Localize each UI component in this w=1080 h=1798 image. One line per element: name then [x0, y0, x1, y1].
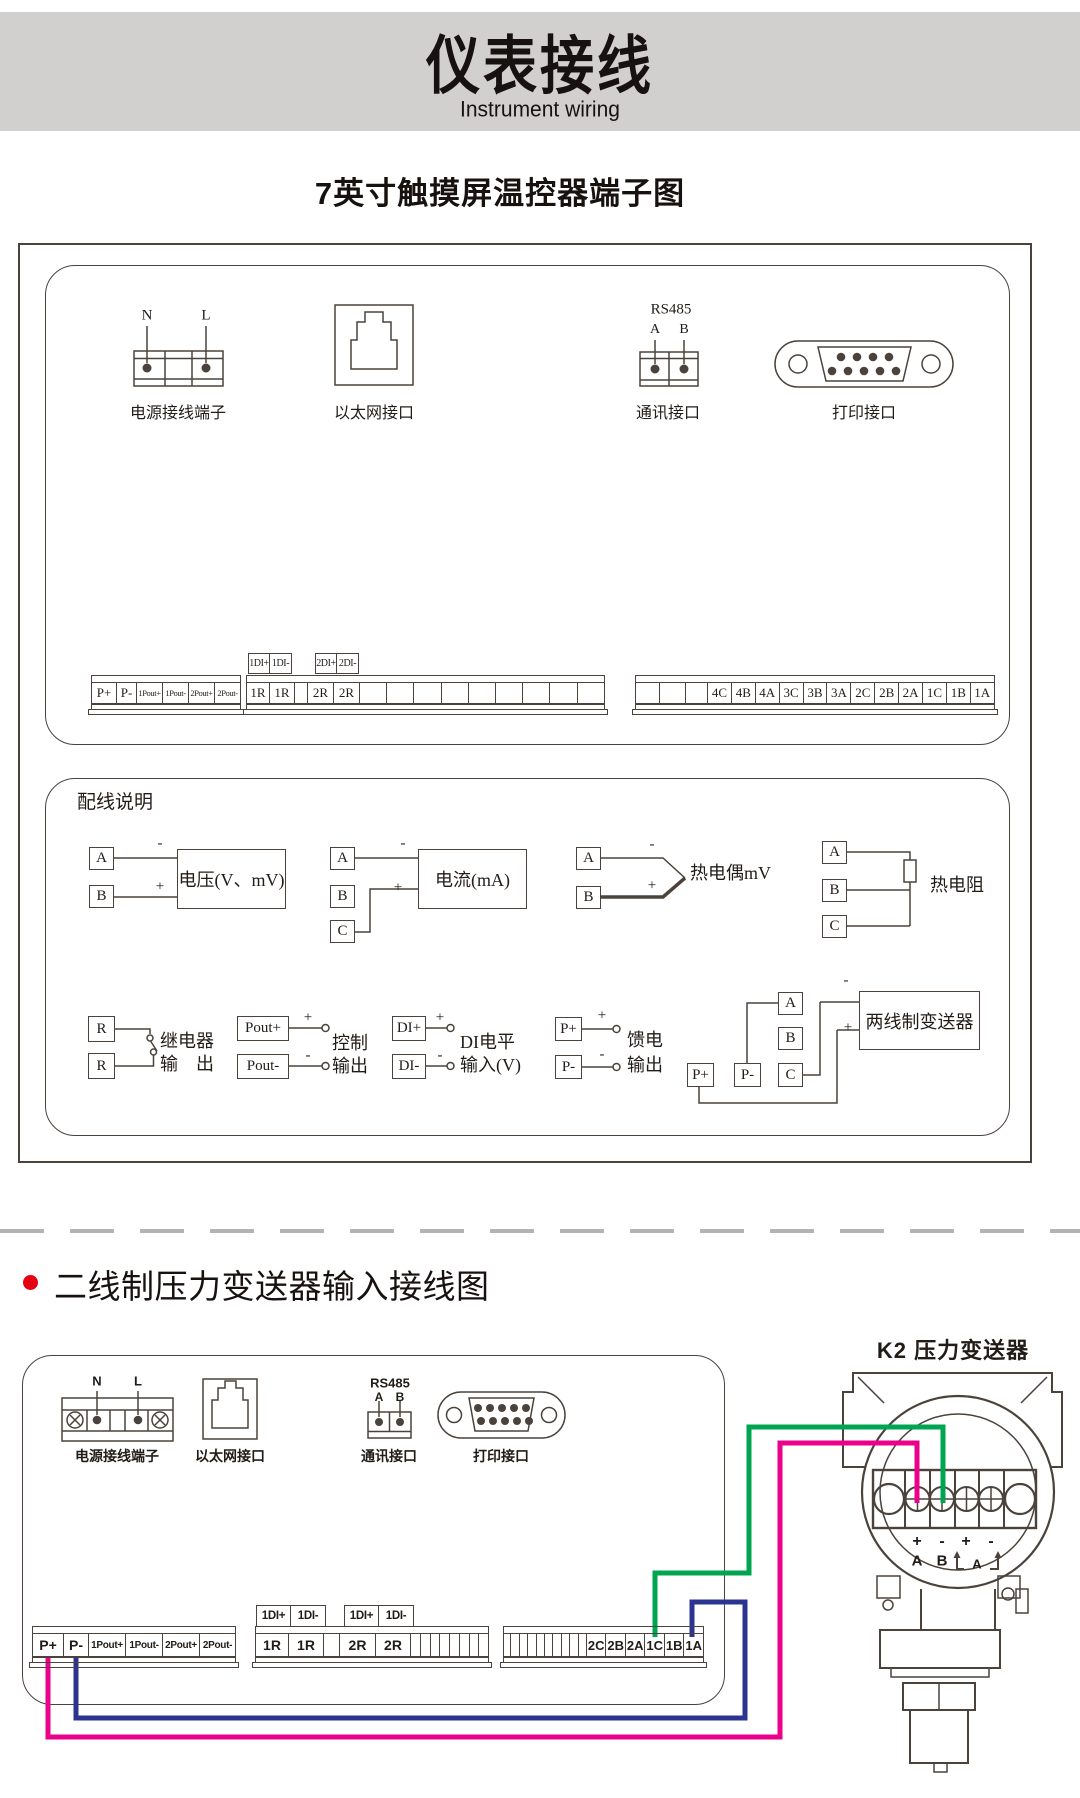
terminal-cell [578, 682, 605, 705]
terminal-a: A [778, 992, 803, 1015]
thermocouple-label: 热电偶mV [690, 859, 771, 885]
minus-sign: - [650, 837, 655, 854]
terminal-a: A [89, 847, 114, 870]
terminal-b: B [576, 886, 601, 909]
terminal-cell: 1DI+ [248, 653, 270, 674]
terminal-cell: 1C [645, 1633, 665, 1658]
minus-sign: - [306, 1048, 311, 1065]
terminal-p-minus: P- [555, 1055, 582, 1079]
terminal-cell [635, 682, 660, 705]
terminal-cell: 3A [827, 682, 851, 705]
terminal-cell [579, 1633, 587, 1658]
plus-sign: + [304, 1010, 312, 1027]
terminal-cell: 1Pout- [163, 682, 189, 705]
power-caption: 电源接线端子 [75, 1446, 159, 1466]
relay-label-2: 输 出 [160, 1050, 214, 1076]
terminal-cell: 2C [851, 682, 875, 705]
transmitter-sign: + [912, 1533, 921, 1551]
printer-port-icon-2 [438, 1392, 565, 1438]
terminal-cell: 2C [587, 1633, 607, 1658]
printer-caption: 打印接口 [832, 399, 896, 423]
terminal-cell: 1C [923, 682, 947, 705]
plus-sign: + [844, 1020, 852, 1037]
terminal-p-plus: P+ [555, 1017, 582, 1041]
section3-title: 二线制压力变送器输入接线图 [54, 1260, 490, 1308]
wire-pink-pplus-to-a [48, 1443, 917, 1737]
feed-label-2: 输出 [627, 1051, 663, 1077]
terminal-cell [440, 1633, 450, 1658]
terminal-c: C [330, 920, 355, 943]
strip-relay: 1R1R2R2R [246, 675, 605, 715]
terminal-cell [360, 682, 387, 705]
terminal-cell: 2A [899, 682, 923, 705]
terminal-cell [469, 682, 496, 705]
terminal-cell: 2B [606, 1633, 626, 1658]
terminal-cell: 2B [875, 682, 899, 705]
di-block-2: 1DI+1DI- [344, 1605, 414, 1627]
power-caption: 电源接线端子 [130, 399, 226, 423]
terminal-cell: 1R [246, 682, 270, 705]
printer-caption: 打印接口 [473, 1446, 529, 1466]
terminal-cell [496, 682, 523, 705]
terminal-c: C [822, 915, 847, 938]
terminal-cell [460, 1633, 470, 1658]
plus-sign: + [394, 880, 402, 897]
terminal-cell: 2Pout- [215, 682, 241, 705]
terminal-cell: 2A [626, 1633, 646, 1658]
terminal-di-minus: DI- [392, 1054, 426, 1079]
terminal-cell: 2DI- [337, 653, 359, 674]
terminal-a: A [822, 841, 847, 864]
transmitter-sign: - [939, 1533, 944, 1551]
terminal-cell [442, 682, 469, 705]
rs485-title: RS485 [651, 302, 692, 319]
terminal-cell: 1B [947, 682, 971, 705]
terminal-cell: 2Pout+ [189, 682, 215, 705]
ethernet-caption: 以太网接口 [334, 399, 414, 423]
rs485-caption: 通讯接口 [361, 1446, 417, 1466]
terminal-r: R [88, 1053, 115, 1079]
transmitter-pin-a2: A [972, 1557, 981, 1572]
terminal-cell [470, 1633, 480, 1658]
terminal-cell: 2R [334, 682, 360, 705]
di-block-1: 1DI+1DI- [256, 1605, 326, 1627]
feed-label-1: 馈电 [627, 1026, 663, 1052]
terminal-cell: 2DI+ [315, 653, 337, 674]
ethernet-caption: 以太网接口 [195, 1446, 265, 1466]
terminal-a: A [330, 847, 355, 870]
rs485-port-icon [640, 340, 698, 386]
terminal-cell [387, 682, 414, 705]
control-label-2: 输出 [332, 1052, 368, 1078]
terminal-p-plus: P+ [687, 1063, 714, 1087]
rs485-title: RS485 [370, 1376, 410, 1391]
strip-power-io: P+P-1Pout+1Pout-2Pout+2Pout- [32, 1626, 236, 1668]
power-n-label: N [142, 308, 153, 325]
minus-sign: - [401, 836, 406, 853]
transmitter-sign: - [988, 1533, 993, 1551]
terminal-cell: 2R [308, 682, 334, 705]
terminal-b: B [89, 885, 114, 908]
terminal-cell: 3C [780, 682, 804, 705]
ethernet-port-icon [335, 305, 413, 385]
terminal-pout-minus: Pout- [237, 1054, 289, 1079]
transmitter-pin-a: A [912, 1553, 923, 1570]
strip-inputs: 4C4B4A3C3B3A2C2B2A1C1B1A [635, 675, 995, 715]
power-l-label: L [201, 308, 210, 325]
terminal-cell: P- [117, 682, 137, 705]
di-label-2: 输入(V) [460, 1051, 521, 1077]
terminal-cell [295, 682, 308, 705]
rs485-b-label: B [679, 322, 688, 338]
terminal-cell: 2R [340, 1633, 376, 1658]
terminal-pout-plus: Pout+ [237, 1016, 289, 1041]
terminal-cell: 1DI+ [344, 1605, 379, 1627]
di-block-1: 1DI+1DI- [248, 653, 292, 674]
current-box: 电流(mA) [418, 849, 527, 909]
strip-power-io: P+P-1Pout+1Pout-2Pout+2Pout- [91, 675, 241, 715]
rs485-a-label: A [375, 1390, 384, 1404]
terminal-cell [660, 682, 686, 705]
strip-inputs: 2C2B2A1C1B1A [503, 1626, 704, 1668]
linework-layer [0, 0, 1080, 1798]
power-terminal-icon [134, 326, 223, 386]
terminal-cell [503, 1633, 511, 1658]
terminal-cell [570, 1633, 578, 1658]
terminal-cell: 1DI- [291, 1605, 326, 1627]
rs485-caption: 通讯接口 [636, 399, 700, 423]
signal-wires [48, 1427, 943, 1737]
k2-transmitter-label: K2 压力变送器 [877, 1333, 1029, 1365]
terminal-cell [411, 1633, 421, 1658]
minus-sign: - [600, 1047, 605, 1064]
minus-sign: - [158, 836, 163, 853]
instrument-wiring-page: 仪表接线 Instrument wiring 7英寸触摸屏温控器端子图 [0, 0, 1080, 1798]
terminal-p-minus: P- [734, 1063, 761, 1087]
terminal-cell [537, 1633, 545, 1658]
power-terminal-icon-2 [62, 1391, 173, 1441]
two-wire-transmitter-box: 两线制变送器 [859, 991, 980, 1050]
terminal-cell [511, 1633, 519, 1658]
rs485-a-label: A [650, 322, 660, 338]
power-l-label: L [134, 1374, 142, 1389]
plus-sign: + [648, 878, 656, 895]
terminal-cell: 1B [665, 1633, 685, 1658]
terminal-cell: 4B [732, 682, 756, 705]
terminal-cell [431, 1633, 441, 1658]
terminal-cell [553, 1633, 561, 1658]
plus-sign: + [598, 1008, 606, 1025]
minus-sign: - [844, 973, 849, 990]
printer-port-icon [775, 341, 953, 387]
terminal-cell [528, 1633, 536, 1658]
plus-sign: + [436, 1010, 444, 1027]
terminal-cell: 1A [684, 1633, 704, 1658]
terminal-cell: 1DI+ [256, 1605, 291, 1627]
rs485-b-label: B [396, 1390, 405, 1404]
pressure-transmitter-drawing [843, 1373, 1062, 1772]
terminal-r: R [88, 1016, 115, 1042]
terminal-a: A [576, 847, 601, 870]
terminal-cell [421, 1633, 431, 1658]
terminal-cell: 1DI- [270, 653, 292, 674]
terminal-cell [550, 682, 577, 705]
terminal-cell [545, 1633, 553, 1658]
terminal-cell: 4A [756, 682, 780, 705]
strip-relay: 1R1R2R2R [255, 1626, 489, 1668]
terminal-b: B [822, 879, 847, 902]
bullet-icon [23, 1275, 38, 1290]
terminal-cell: P- [64, 1633, 89, 1658]
di-block-2: 2DI+2DI- [315, 653, 359, 674]
terminal-cell: 2Pout+ [163, 1633, 200, 1658]
terminal-cell: 1Pout- [126, 1633, 163, 1658]
terminal-cell [523, 682, 550, 705]
terminal-cell: 1R [255, 1633, 289, 1658]
terminal-cell [520, 1633, 528, 1658]
terminal-cell: 1Pout+ [137, 682, 163, 705]
plus-sign: + [156, 879, 164, 896]
terminal-cell [562, 1633, 570, 1658]
transmitter-pin-b: B [937, 1553, 948, 1570]
terminal-cell [450, 1633, 460, 1658]
terminal-cell: 1R [289, 1633, 324, 1658]
transmitter-sign: + [961, 1533, 970, 1551]
terminal-cell: 2R [376, 1633, 411, 1658]
terminal-cell: P+ [32, 1633, 64, 1658]
rs485-port-icon-2 [368, 1401, 411, 1438]
terminal-cell [324, 1633, 340, 1658]
terminal-cell: 2Pout- [200, 1633, 236, 1658]
terminal-cell [414, 682, 441, 705]
terminal-cell: 4C [708, 682, 732, 705]
terminal-c: C [778, 1063, 803, 1087]
terminal-cell: 1DI- [379, 1605, 414, 1627]
ethernet-port-icon-2 [203, 1379, 257, 1439]
terminal-cell: 1R [270, 682, 295, 705]
terminal-b: B [778, 1027, 803, 1050]
terminal-cell: 1A [971, 682, 995, 705]
wiring-notes-title: 配线说明 [77, 787, 153, 814]
terminal-cell [479, 1633, 489, 1658]
terminal-cell [686, 682, 708, 705]
minus-sign: - [438, 1048, 443, 1065]
terminal-cell: 3B [804, 682, 828, 705]
terminal-cell: P+ [91, 682, 117, 705]
terminal-di-plus: DI+ [392, 1016, 426, 1041]
terminal-cell: 1Pout+ [89, 1633, 126, 1658]
rtd-label: 热电阻 [930, 871, 984, 897]
power-n-label: N [92, 1374, 101, 1389]
terminal-b: B [330, 885, 355, 908]
voltage-box: 电压(V、mV) [177, 849, 286, 909]
